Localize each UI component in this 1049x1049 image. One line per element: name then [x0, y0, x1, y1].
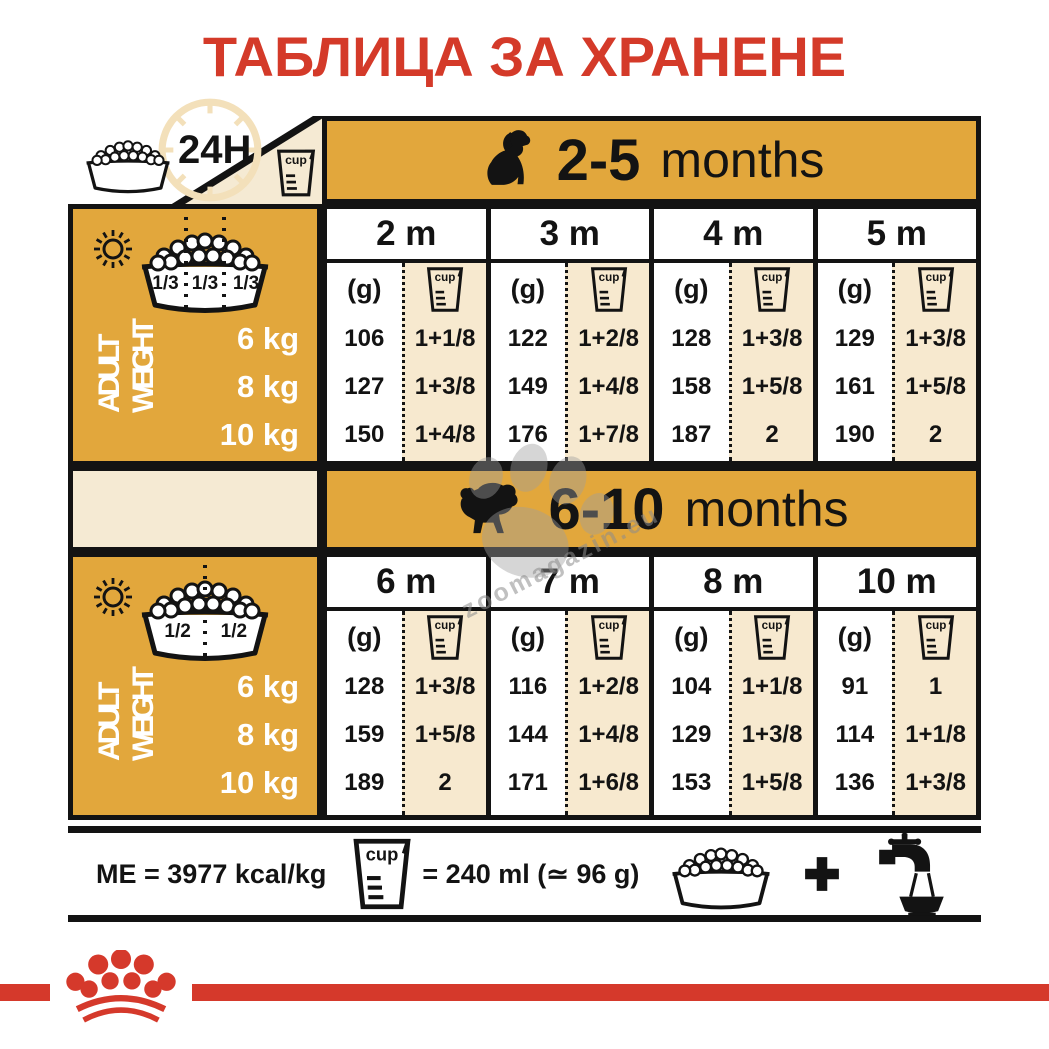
svg-text:cup: cup — [762, 618, 783, 631]
cup-icon: cup — [917, 614, 955, 661]
month-header: 2 m — [327, 209, 486, 263]
food-bowl-icon — [78, 126, 178, 200]
month-column-10m: 10 m (g) 91 114 136 cup 1 1+1/8 1+3/8 — [818, 557, 977, 815]
cup-equivalence-label: = 240 ml (≃ 96 g) — [422, 859, 639, 890]
cup-value: 1+1/8 — [405, 315, 486, 363]
cup-value: 1+3/8 — [895, 315, 976, 363]
cup-value: 1+2/8 — [568, 315, 649, 363]
weight-row-label: 10 kg — [73, 411, 317, 459]
grams-unit-label: (g) — [654, 611, 729, 663]
cup-icon: cup — [753, 266, 791, 313]
grams-value: 104 — [654, 663, 729, 711]
grams-value: 159 — [327, 711, 402, 759]
month-header: 4 m — [654, 209, 813, 263]
grams-subcolumn: (g) 104 129 153 — [654, 611, 729, 815]
cup-value: 2 — [895, 411, 976, 459]
cup-value: 1+3/8 — [895, 759, 976, 807]
section-header-2-5-months: 2-5 months — [322, 116, 981, 204]
cup-value: 1+3/8 — [405, 363, 486, 411]
months-grid-section2: 6 m (g) 128 159 189 cup 1+3/8 1+5/8 2 7 … — [322, 552, 981, 820]
grams-unit-label: (g) — [327, 263, 402, 315]
svg-text:cup: cup — [285, 153, 307, 167]
grams-value: 187 — [654, 411, 729, 459]
svg-text:cup: cup — [762, 270, 783, 283]
measuring-cup-icon: cup — [276, 148, 316, 198]
cups-subcolumn: cup 1+1/8 1+3/8 1+5/8 — [729, 611, 813, 815]
feeding-table: 24H cup 2-5 months 1/3 1/3 1/3 ADULT WEI… — [68, 116, 981, 820]
grams-value: 136 — [818, 759, 893, 807]
grams-value: 176 — [491, 411, 566, 459]
month-column-7m: 7 m (g) 116 144 171 cup 1+2/8 1+4/8 1+6/… — [491, 557, 655, 815]
cup-value: 1+5/8 — [895, 363, 976, 411]
cup-value: 1+5/8 — [732, 363, 813, 411]
meal-split-icons: 1/2 1/2 — [73, 557, 317, 663]
fraction-label: 1/3 — [192, 273, 218, 295]
ration-bowl-halves: 1/2 1/2 — [129, 563, 281, 663]
grams-unit-label: (g) — [491, 611, 566, 663]
grams-subcolumn: (g) 128 159 189 — [327, 611, 402, 815]
spacer-cell — [68, 466, 322, 552]
grams-subcolumn: (g) 128 158 187 — [654, 263, 729, 461]
food-bowl-icon — [647, 834, 795, 914]
cup-icon: cup — [917, 266, 955, 313]
axis-word-weight: WEIGHT — [129, 323, 159, 413]
royal-canin-crown-logo — [59, 950, 183, 1030]
grams-value: 149 — [491, 363, 566, 411]
svg-text:cup: cup — [435, 270, 456, 283]
month-header: 3 m — [491, 209, 650, 263]
grams-value: 91 — [818, 663, 893, 711]
cup-value: 1+4/8 — [568, 363, 649, 411]
grams-subcolumn: (g) 106 127 150 — [327, 263, 402, 461]
grams-value: 129 — [654, 711, 729, 759]
cup-value: 1+5/8 — [732, 759, 813, 807]
age-unit: months — [685, 480, 849, 538]
grams-subcolumn: (g) 122 149 176 — [491, 263, 566, 461]
cup-icon: cup — [753, 614, 791, 661]
grams-value: 106 — [327, 315, 402, 363]
grams-unit-label: (g) — [491, 263, 566, 315]
24h-label: 24H — [178, 128, 251, 173]
cup-value: 1+4/8 — [405, 411, 486, 459]
months-grid-section1: 2 m (g) 106 127 150 cup 1+1/8 1+3/8 1+4/… — [322, 204, 981, 466]
cup-value: 1+1/8 — [732, 663, 813, 711]
svg-text:cup: cup — [435, 618, 456, 631]
grams-value: 190 — [818, 411, 893, 459]
cups-subcolumn: cup 1+1/8 1+3/8 1+4/8 — [402, 263, 486, 461]
svg-text:cup: cup — [925, 618, 946, 631]
cups-subcolumn: cup 1 1+1/8 1+3/8 — [892, 611, 976, 815]
grams-value: 127 — [327, 363, 402, 411]
cup-value: 1+3/8 — [405, 663, 486, 711]
month-header: 5 m — [818, 209, 977, 263]
grams-subcolumn: (g) 91 114 136 — [818, 611, 893, 815]
bowl-thirds-icon — [129, 215, 281, 324]
adult-weight-axis: ADULT WEIGHT — [95, 671, 159, 761]
cups-subcolumn: cup 1+2/8 1+4/8 1+6/8 — [565, 611, 649, 815]
cup-value: 1+4/8 — [568, 711, 649, 759]
axis-word-weight: WEIGHT — [129, 671, 159, 761]
pug-icon — [454, 480, 528, 538]
grams-unit-label: (g) — [327, 611, 402, 663]
grams-value: 128 — [654, 315, 729, 363]
grams-value: 122 — [491, 315, 566, 363]
section-header-6-10-months: 6-10 months — [322, 466, 981, 552]
grams-value: 128 — [327, 663, 402, 711]
cups-subcolumn: cup 1+2/8 1+4/8 1+7/8 — [565, 263, 649, 461]
ration-bowl-thirds: 1/3 1/3 1/3 — [129, 215, 281, 315]
water-tap-icon — [849, 832, 961, 916]
cup-icon: cup — [590, 266, 628, 313]
grams-value: 150 — [327, 411, 402, 459]
footer-info-strip: ME = 3977 kcal/kg cup = 240 ml (≃ 96 g) — [68, 826, 981, 922]
axis-word-adult: ADULT — [95, 323, 125, 413]
daily-ration-corner: 24H cup — [68, 116, 322, 204]
cup-icon: cup — [590, 614, 628, 661]
left-panel-section2: 1/2 1/2 ADULT WEIGHT 6 kg 8 kg 10 kg — [68, 552, 322, 820]
weight-row-label: 10 kg — [73, 759, 317, 807]
age-unit: months — [660, 131, 824, 189]
cup-value: 1+3/8 — [732, 315, 813, 363]
svg-text:cup: cup — [598, 270, 619, 283]
fraction-label: 1/2 — [164, 621, 190, 643]
bowl-halves-icon — [129, 563, 281, 672]
cup-value: 2 — [732, 411, 813, 459]
grams-value: 144 — [491, 711, 566, 759]
month-column-8m: 8 m (g) 104 129 153 cup 1+1/8 1+3/8 1+5/… — [654, 557, 818, 815]
page-title: ТАБЛИЦА ЗА ХРАНЕНЕ — [0, 24, 1049, 89]
measuring-cup-icon: cup — [352, 836, 412, 912]
svg-text:cup: cup — [598, 618, 619, 631]
cup-value: 1+6/8 — [568, 759, 649, 807]
month-column-5m: 5 m (g) 129 161 190 cup 1+3/8 1+5/8 2 — [818, 209, 977, 461]
month-column-4m: 4 m (g) 128 158 187 cup 1+3/8 1+5/8 2 — [654, 209, 818, 461]
cup-value: 1+3/8 — [732, 711, 813, 759]
plus-icon — [803, 855, 841, 893]
cup-value: 1+2/8 — [568, 663, 649, 711]
fraction-label: 1/3 — [233, 273, 259, 295]
axis-word-adult: ADULT — [95, 671, 125, 761]
puppy-icon — [479, 127, 537, 193]
grams-value: 161 — [818, 363, 893, 411]
grams-unit-label: (g) — [818, 263, 893, 315]
cup-icon: cup — [426, 614, 464, 661]
meal-split-icons: 1/3 1/3 1/3 — [73, 209, 317, 315]
grams-value: 129 — [818, 315, 893, 363]
month-header: 6 m — [327, 557, 486, 611]
age-range: 2-5 — [557, 127, 641, 194]
month-column-6m: 6 m (g) 128 159 189 cup 1+3/8 1+5/8 2 — [327, 557, 491, 815]
month-header: 10 m — [818, 557, 977, 611]
month-header: 8 m — [654, 557, 813, 611]
adult-weight-axis: ADULT WEIGHT — [95, 323, 159, 413]
grams-value: 171 — [491, 759, 566, 807]
fraction-label: 1/2 — [221, 621, 247, 643]
svg-text:cup: cup — [925, 270, 946, 283]
cup-value: 1+5/8 — [405, 711, 486, 759]
cups-subcolumn: cup 1+3/8 1+5/8 2 — [729, 263, 813, 461]
fraction-label: 1/3 — [152, 273, 178, 295]
grams-value: 153 — [654, 759, 729, 807]
cup-icon: cup — [426, 266, 464, 313]
month-column-2m: 2 m (g) 106 127 150 cup 1+1/8 1+3/8 1+4/… — [327, 209, 491, 461]
metabolizable-energy-label: ME = 3977 kcal/kg — [96, 859, 326, 890]
grams-unit-label: (g) — [818, 611, 893, 663]
grams-value: 116 — [491, 663, 566, 711]
age-range: 6-10 — [548, 476, 664, 543]
cups-subcolumn: cup 1+3/8 1+5/8 2 — [892, 263, 976, 461]
grams-value: 189 — [327, 759, 402, 807]
grams-subcolumn: (g) 129 161 190 — [818, 263, 893, 461]
cups-subcolumn: cup 1+3/8 1+5/8 2 — [402, 611, 486, 815]
cup-value: 1+1/8 — [895, 711, 976, 759]
grams-unit-label: (g) — [654, 263, 729, 315]
cup-value: 1+7/8 — [568, 411, 649, 459]
grams-value: 114 — [818, 711, 893, 759]
month-column-3m: 3 m (g) 122 149 176 cup 1+2/8 1+4/8 1+7/… — [491, 209, 655, 461]
brand-logo-box — [50, 942, 192, 1038]
cup-value: 1 — [895, 663, 976, 711]
svg-text:cup: cup — [366, 843, 399, 864]
grams-subcolumn: (g) 116 144 171 — [491, 611, 566, 815]
month-header: 7 m — [491, 557, 650, 611]
grams-value: 158 — [654, 363, 729, 411]
left-panel-section1: 1/3 1/3 1/3 ADULT WEIGHT 6 kg 8 kg 10 kg — [68, 204, 322, 466]
cup-value: 2 — [405, 759, 486, 807]
